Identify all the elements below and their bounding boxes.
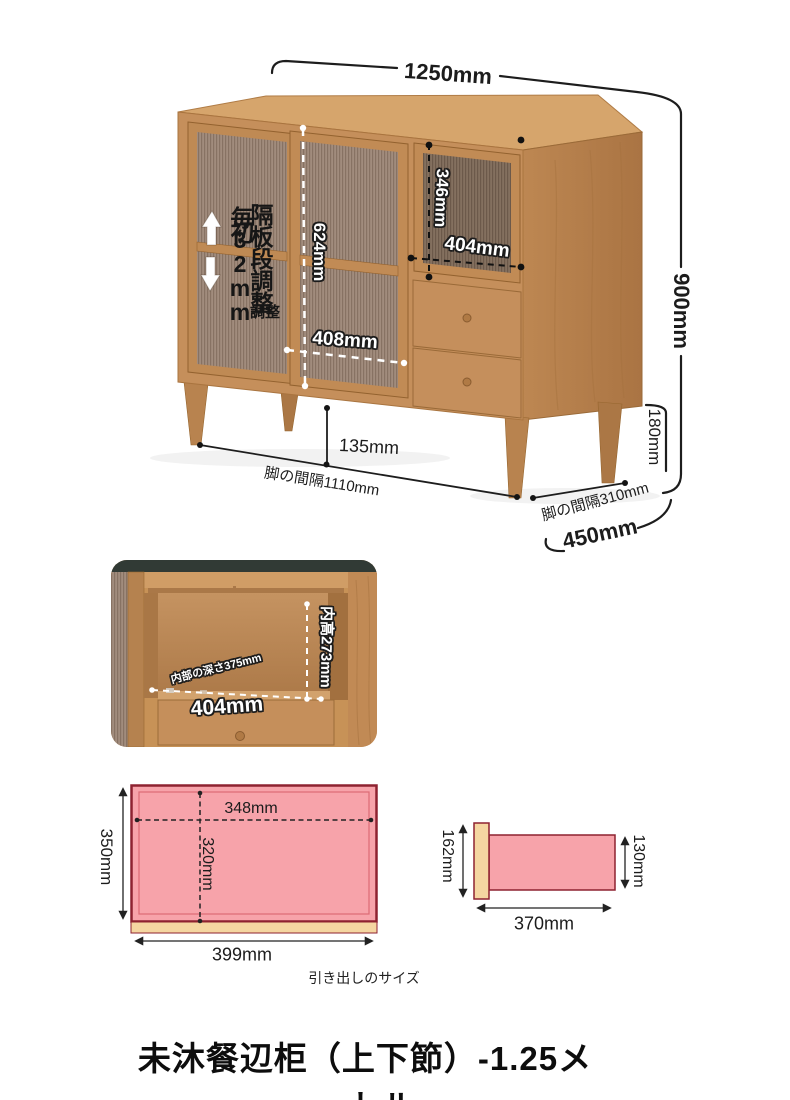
drawer-side-length-label: 370mm (514, 914, 574, 935)
drawer-side-schematic (463, 823, 625, 908)
drawer-front-height-label: 350mm (96, 829, 116, 886)
interior-inner-height-label: 内高273mm (316, 606, 338, 688)
product-title: 未沐餐辺柜（上下節）-1.25メートル (132, 1032, 598, 1100)
drawer-front-inner-depth-label: 320mm (198, 837, 216, 890)
leg-height-label: 180mm (644, 409, 664, 466)
interior-inner-width-label: 404mm (190, 693, 264, 722)
drawer-size-caption: 引き出しのサイズ (294, 968, 434, 988)
glass-door-height-label: 624mm (309, 223, 329, 282)
flip-door-height-label: 346mm (430, 168, 452, 227)
shelf-note-footnote: 調整 (250, 301, 280, 322)
drawer-side-box-height-label: 130mm (629, 834, 647, 887)
drawer-side-front-height-label: 162mm (438, 829, 456, 882)
diagram-artwork (0, 0, 790, 1100)
shelf-note-column-b: 隔板段調整 (248, 203, 271, 313)
drawer-front-inner-width-label: 348mm (224, 800, 277, 818)
floor-clearance-label: 135mm (338, 435, 399, 459)
glass-door-width-label: 408mm (312, 328, 379, 355)
product-dimension-sheet: 1250mm 900mm 180mm 450mm 脚の間隔310mm 脚の間隔1… (0, 0, 790, 1100)
overall-height-label: 900mm (668, 273, 694, 349)
drawer-front-width-label: 399mm (212, 945, 272, 966)
